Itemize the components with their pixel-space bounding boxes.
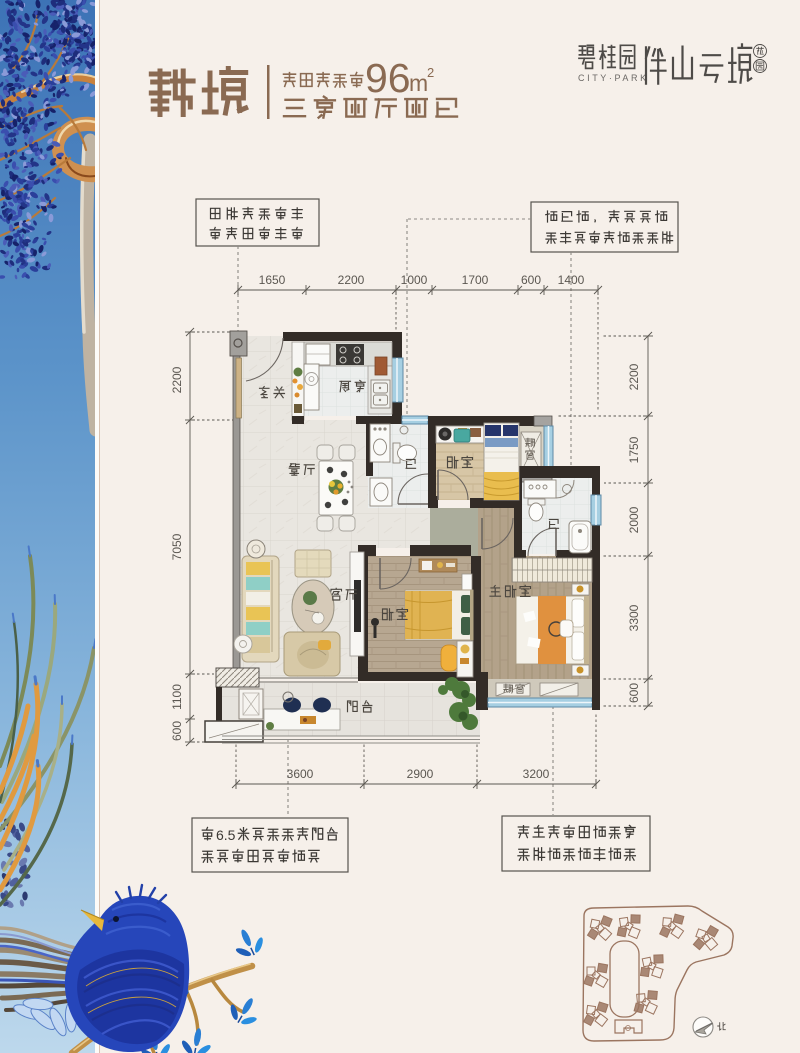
svg-text:m: m [409, 70, 428, 96]
svg-text:1750: 1750 [627, 436, 641, 463]
svg-text:2200: 2200 [338, 273, 365, 287]
svg-text:600: 600 [627, 683, 641, 703]
svg-text:6.5: 6.5 [216, 827, 236, 843]
svg-text:2200: 2200 [170, 366, 184, 393]
svg-text:1400: 1400 [558, 273, 585, 287]
svg-text:3300: 3300 [627, 604, 641, 631]
svg-text:1650: 1650 [259, 273, 286, 287]
svg-text:2: 2 [427, 65, 434, 80]
svg-text:1100: 1100 [170, 684, 184, 710]
svg-text:3600: 3600 [287, 767, 314, 781]
svg-text:3200: 3200 [523, 767, 550, 781]
svg-text:CITY·PARK: CITY·PARK [578, 73, 649, 83]
svg-text:1000: 1000 [401, 273, 428, 287]
svg-text:2000: 2000 [627, 506, 641, 533]
svg-text:1700: 1700 [462, 273, 489, 287]
svg-text:2900: 2900 [407, 767, 434, 781]
svg-text:7050: 7050 [170, 533, 184, 560]
svg-text:600: 600 [170, 721, 184, 741]
svg-text:96: 96 [365, 55, 411, 101]
svg-text:2200: 2200 [627, 363, 641, 390]
svg-text:600: 600 [521, 273, 541, 287]
